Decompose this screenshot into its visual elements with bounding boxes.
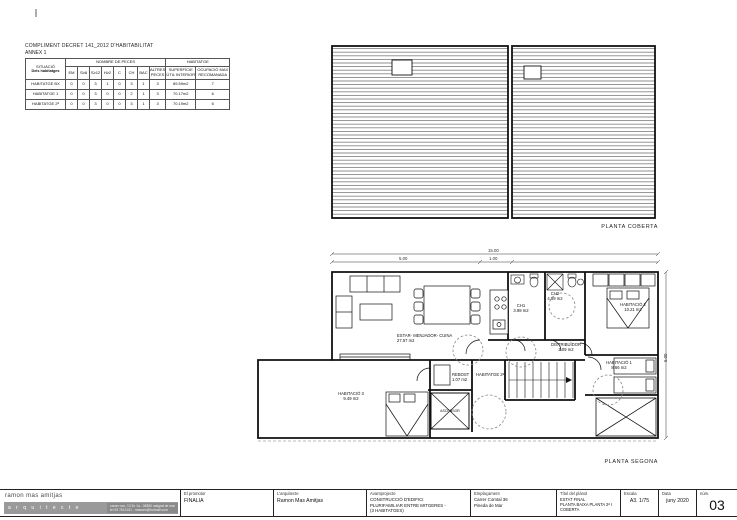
row-label: HABITATGE 2ª bbox=[26, 100, 66, 110]
row-label: HABITATGE BX bbox=[26, 80, 66, 90]
storage-box bbox=[434, 365, 450, 385]
elevator-label: ASCENSOR bbox=[434, 409, 466, 413]
room-label-rebost: REBOST1.07 m2 bbox=[452, 372, 469, 383]
date-value: juny 2020 bbox=[662, 498, 693, 504]
group-peces: NOMBRE DE PECES bbox=[66, 59, 166, 67]
washbasin bbox=[578, 279, 584, 285]
col-header-occupancy: OCUPACIÓ MAX RECOMANADA bbox=[196, 67, 230, 80]
bathroom-ch2 bbox=[547, 274, 584, 290]
bedroom-3-furniture bbox=[386, 392, 428, 436]
row-label: HABITATGE 1 bbox=[26, 90, 66, 100]
scale-value: A3. 1/75 bbox=[624, 498, 655, 504]
kitchen-counter bbox=[490, 290, 508, 334]
room-label-bedroom-3: HABITACIÓ 39.49 m2 bbox=[334, 391, 368, 402]
situacio-header: SITUACIÓ Dels habitatges bbox=[26, 59, 66, 80]
dim-right: 5.00 bbox=[663, 354, 668, 362]
bedroom-2-furniture bbox=[593, 274, 655, 328]
roof-plan bbox=[332, 46, 655, 218]
table-group-row: SITUACIÓ Dels habitatges NOMBRE DE PECES… bbox=[26, 59, 230, 67]
table-row: HABITATGE BX 0 0 3 1 0 3 1 3 89.59m2 7 bbox=[26, 80, 230, 90]
room-label-ch2: CH24.59 m2 bbox=[544, 291, 566, 302]
unit-tag: HABITATGE 2ª bbox=[476, 372, 504, 377]
col-header: S≥8 bbox=[78, 67, 90, 80]
col-header: ALTRES PECES bbox=[150, 67, 166, 80]
studio-logo-cell: ramon mas amitjas a r q u i t e c t e ca… bbox=[0, 490, 180, 516]
promoter-value: FINALIA bbox=[184, 498, 270, 504]
table-row: HABITATGE 1 0 0 3 0 0 2 1 3 70.17m2 6 bbox=[26, 90, 230, 100]
col-header: H≥2 bbox=[102, 67, 114, 80]
location-cell: Emplaçament Carrer Comtal 36 Pineda de M… bbox=[470, 490, 556, 516]
sheet-number-cell: núm. 03 bbox=[696, 490, 737, 516]
dim-seg-b: 1.00 bbox=[489, 256, 497, 261]
group-habitatge: HABITATGE bbox=[166, 59, 230, 67]
project-cell: Avantprojecte CONSTRUCCIÓ D'EDIFICI PLUR… bbox=[366, 490, 470, 516]
studio-name: ramon mas amitjas bbox=[5, 493, 177, 499]
col-header: BAC bbox=[138, 67, 150, 80]
dining-table bbox=[414, 286, 480, 324]
toilet bbox=[568, 277, 576, 287]
drawing-sheet: COMPLIMENT DECRET 141_2012 D'HABITABILIT… bbox=[0, 0, 737, 520]
room-label-ch1: CH13.98 m2 bbox=[510, 303, 532, 314]
roof-plan-title: PLANTA COBERTA bbox=[575, 224, 658, 230]
scale-cell: Escala A3. 1/75 bbox=[620, 490, 658, 516]
dim-seg-a: 5.00 bbox=[399, 256, 407, 261]
bathroom-ch1 bbox=[511, 274, 538, 287]
room-label-living: ESTAR- MENJADOR- CUINA27.57 m2 bbox=[397, 333, 452, 344]
studio-contact: carrer nou, 13 2n 1a - 08380 malgrat de … bbox=[107, 503, 178, 514]
coffee-table bbox=[360, 304, 392, 320]
location-value: Carrer Comtal 36 Pineda de Mar bbox=[474, 497, 553, 508]
col-header: CH bbox=[126, 67, 138, 80]
room-label-bedroom-2: HABITACIÓ 210.21 m2 bbox=[616, 302, 650, 313]
date-cell: Data juny 2020 bbox=[658, 490, 696, 516]
sofa bbox=[336, 276, 400, 328]
room-label-bedroom-1: HABITACIÓ 18.66 m2 bbox=[602, 360, 636, 371]
toilet bbox=[530, 277, 538, 287]
sheet-title-value: ESTAT FINAL PLANTA BAIXA PLANTA 2ª I COB… bbox=[560, 497, 617, 512]
stairs bbox=[509, 362, 573, 398]
room-label-distribuidor: DISTRIBUÏDOR2.09 m2 bbox=[550, 342, 582, 353]
col-header: C bbox=[114, 67, 126, 80]
promoter-cell: El promotor FINALIA bbox=[180, 490, 273, 516]
compliance-subtitle: ANNEX 1 bbox=[25, 50, 46, 56]
col-header: EM bbox=[66, 67, 78, 80]
title-block: ramon mas amitjas a r q u i t e c t e ca… bbox=[0, 489, 737, 517]
sheet-title-cell: Títol del plànol ESTAT FINAL PLANTA BAIX… bbox=[556, 490, 620, 516]
dim-total: 15.00 bbox=[488, 248, 499, 253]
col-header: S≥12 bbox=[90, 67, 102, 80]
skylight bbox=[524, 66, 541, 79]
table-row: HABITATGE 2ª 0 0 3 0 0 3 1 3 70.19m2 6 bbox=[26, 100, 230, 110]
compliance-title: COMPLIMENT DECRET 141_2012 D'HABITABILIT… bbox=[25, 43, 153, 49]
architect-cell: L'arquitecte Ramon Mas Amitjas bbox=[273, 490, 366, 516]
compliance-table: SITUACIÓ Dels habitatges NOMBRE DE PECES… bbox=[25, 58, 230, 110]
floor-plan-title: PLANTA SEGONA bbox=[558, 459, 658, 465]
project-value: CONSTRUCCIÓ D'EDIFICI PLURIFAMILIAR ENTR… bbox=[370, 497, 467, 514]
sheet-number: 03 bbox=[700, 496, 734, 516]
terrace-pergola bbox=[596, 398, 656, 436]
skylight bbox=[392, 60, 412, 75]
col-header-surface: SUPERFÍCIE ÚTIL INTERIOR bbox=[166, 67, 196, 80]
studio-bar: a r q u i t e c t e carrer nou, 13 2n 1a… bbox=[4, 502, 178, 514]
studio-tagline: a r q u i t e c t e bbox=[4, 505, 80, 511]
architect-value: Ramon Mas Amitjas bbox=[277, 498, 363, 504]
